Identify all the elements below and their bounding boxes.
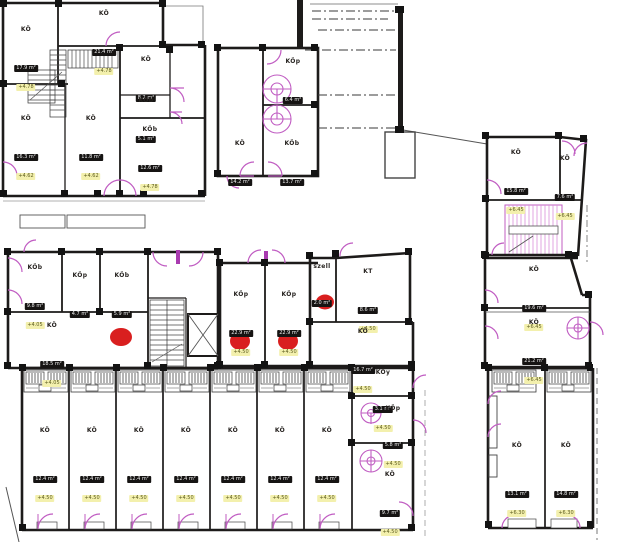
bath-pod xyxy=(259,370,303,392)
unit-door xyxy=(84,514,104,529)
room-label: KÖ 7.6 m² +6.45 xyxy=(555,156,575,221)
notch-room xyxy=(385,132,415,178)
room-label: KÖ 9.7 m² +4.50 xyxy=(380,472,400,537)
bath-pod xyxy=(165,370,209,392)
room-label: KÖ 21.4 m² +4.78 xyxy=(92,11,116,76)
wall-stub xyxy=(297,0,303,48)
room-label: KÖp 5.8 m² +4.50 xyxy=(383,406,403,469)
bath-pod xyxy=(547,370,591,392)
unit-door xyxy=(131,514,151,529)
room-label: KÖ 12.4 m² +4.50 xyxy=(127,428,151,503)
room-label: KÖ 14.8 m² +6.30 xyxy=(554,443,578,518)
room-label: KÖp 4.7 m² xyxy=(70,273,90,319)
unit-door xyxy=(225,514,245,529)
room-label: KÖ 12.4 m² +4.50 xyxy=(268,428,292,503)
bath-pod xyxy=(71,370,115,392)
unit-door xyxy=(319,514,339,529)
room-label: KÖ 12.4 m² +4.50 xyxy=(315,428,339,503)
room-label: KÖ 21.2 m² +6.45 xyxy=(522,320,546,385)
room-label: KÖp 22.9 m² +4.50 xyxy=(277,292,301,357)
thick-wall xyxy=(398,8,403,132)
room-label: KÖ 16.7 m² +4.50 xyxy=(351,329,375,394)
room-label: KÖ 16.3 m² +4.62 xyxy=(14,116,38,181)
room-label: KÖ 13.1 m² +6.30 xyxy=(505,443,529,518)
unit-door xyxy=(37,514,57,529)
red-marker xyxy=(110,328,132,346)
floor-plan-canvas: KÖ 17.9 m² +4.78 KÖ 21.4 m² +4.78 KÖ 8.2… xyxy=(0,0,640,542)
room-label: KÖb 12.6 m² +4.78 xyxy=(138,127,162,192)
unit-door xyxy=(272,514,292,529)
bath-pod xyxy=(306,370,350,392)
unit-door xyxy=(178,514,198,529)
elevator xyxy=(188,314,218,356)
room-label: KÖp 22.9 m² +4.50 xyxy=(229,292,253,357)
room-label: KÖb 13.7 m² xyxy=(280,141,304,187)
room-label: KÖ 17.9 m² +4.78 xyxy=(14,27,38,92)
room-label: szell 2.0 m² xyxy=(312,264,332,308)
room-label: KÖ 15.8 m² +6.45 xyxy=(504,150,528,215)
room-label: KÖb 9.8 m² +4.05 xyxy=(25,265,45,330)
core-stair xyxy=(150,300,184,366)
room-label: KÖ 12.4 m² +4.50 xyxy=(174,428,198,503)
room-label: KÖp 6.4 m² xyxy=(283,59,303,105)
room-label: KÖ 12.4 m² +4.50 xyxy=(221,428,245,503)
bath-pod xyxy=(212,370,256,392)
corridor-planters xyxy=(20,215,145,228)
room-label: KÖb 5.9 m² xyxy=(112,273,132,319)
room-label: KÖ 12.4 m² +4.50 xyxy=(33,428,57,503)
room-label: KÖ 14.2 m² xyxy=(228,141,252,187)
bath-pod xyxy=(118,370,162,392)
door-jamb xyxy=(176,250,180,264)
room-label: KÖ 12.4 m² +4.50 xyxy=(80,428,104,503)
room-label: KÖ 18.5 m² +4.05 xyxy=(40,323,64,388)
room-label: KÖ 11.8 m² +4.62 xyxy=(79,116,103,181)
drain-symbol-right xyxy=(567,317,589,339)
room-label: KT 8.6 m² +4.50 xyxy=(358,269,378,334)
